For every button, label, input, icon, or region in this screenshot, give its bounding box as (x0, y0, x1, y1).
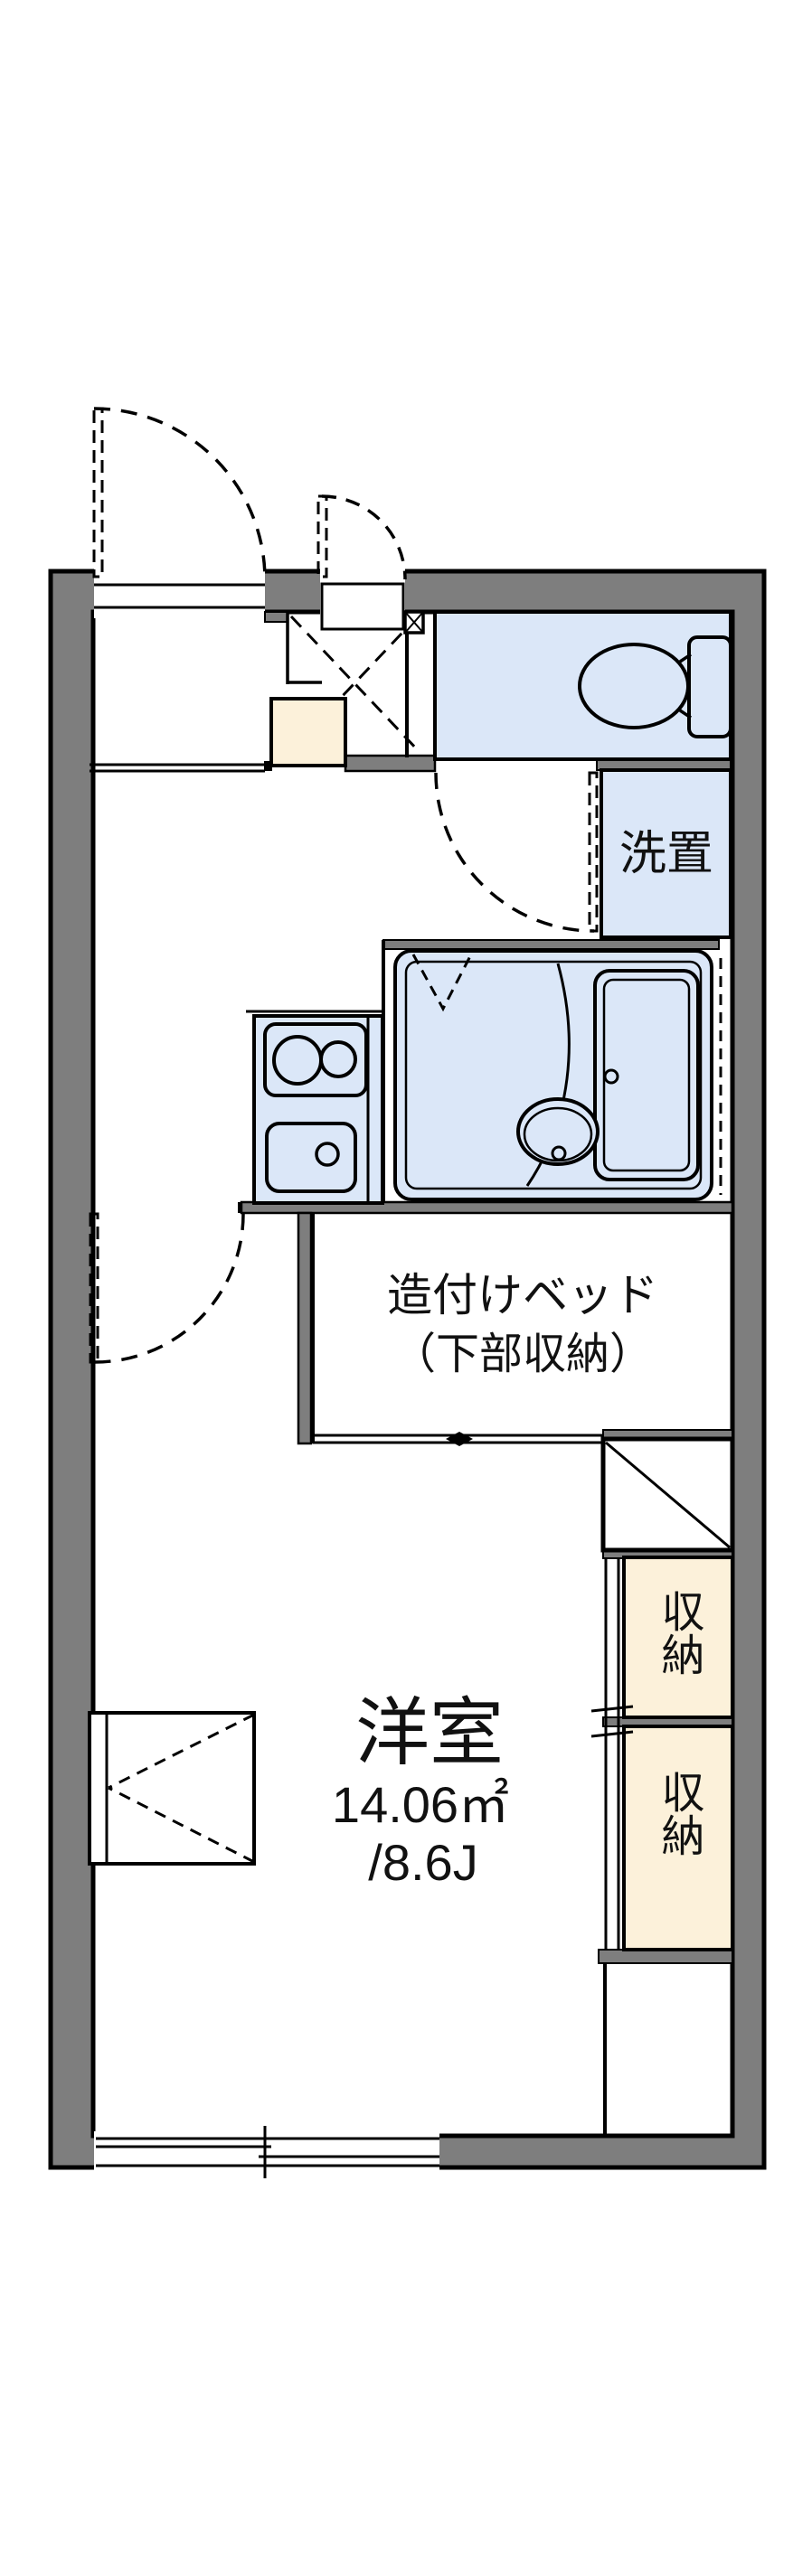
toilet-tank (689, 637, 731, 737)
bed-label-line1: 造付けベッド (387, 1270, 658, 1321)
genkan-bottom-wall (345, 756, 435, 771)
hall-divider-cap (264, 761, 272, 771)
sliding-window (94, 2126, 439, 2178)
shoe-cabinet (271, 699, 345, 766)
entrance-door-opening (94, 565, 265, 618)
floor-plan-page: 洗置 造付けベッド （下部収納） 洋室 14.06㎡ /8.6J 収納 収納 (0, 0, 812, 2576)
genkan-wall-stub (265, 612, 288, 622)
sink-drain (316, 1143, 338, 1165)
basin-drain (552, 1147, 565, 1160)
storage-lower-label: 収納 (655, 1770, 704, 1857)
bathtub-drain (605, 1070, 618, 1083)
bed-side-wall (298, 1213, 311, 1443)
bed-label-line2: （下部収納） (392, 1330, 653, 1378)
desk-outline (90, 1713, 254, 1864)
room-tatami-label: /8.6J (368, 1834, 477, 1891)
room-name-label: 洋室 (355, 1692, 504, 1774)
genkan-step (322, 584, 403, 629)
kitchen-counter (246, 1011, 382, 1203)
floor-plan: 洗置 造付けベッド （下部収納） 洋室 14.06㎡ /8.6J 収納 収納 (0, 0, 812, 2576)
storage-upper-label: 収納 (655, 1589, 704, 1676)
stove-burner-small (321, 1042, 355, 1076)
built-in-desk (90, 1713, 254, 1864)
room-area-label: 14.06㎡ (332, 1776, 509, 1833)
bathroom-unit (383, 940, 721, 1203)
closet-bottom-band (599, 1950, 732, 1963)
bath-top-wall (383, 940, 719, 949)
toilet-bowl (580, 644, 688, 728)
laundry-label: 洗置 (619, 828, 713, 880)
kitchen-sink (267, 1123, 355, 1191)
stove-burner-large (274, 1037, 321, 1084)
